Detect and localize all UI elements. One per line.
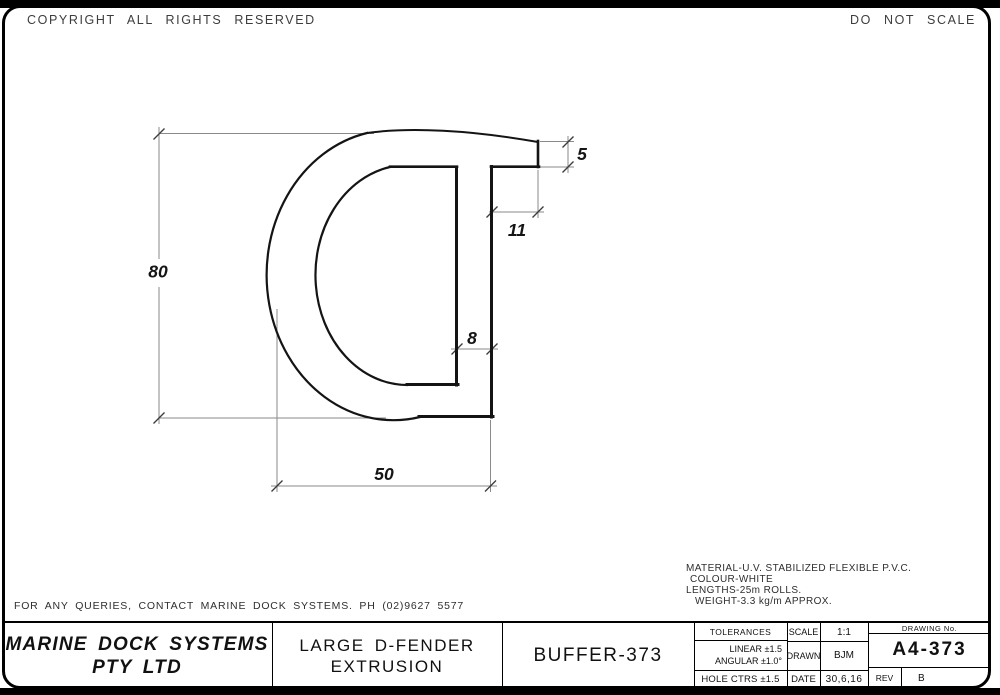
inner-arc — [315, 167, 407, 385]
date-value: 30,6,16 — [820, 670, 868, 689]
outer-top-line — [367, 130, 538, 142]
note-colour: COLOUR-WHITE — [686, 574, 911, 585]
scale-value: 1:1 — [820, 623, 868, 641]
note-material: MATERIAL-U.V. STABILIZED FLEXIBLE P.V.C. — [686, 563, 911, 574]
company-name: MARINE DOCK SYSTEMS PTY LTD — [2, 623, 272, 689]
tolerance-angular: ANGULAR ±1.0° — [715, 655, 782, 667]
dimension-8-label: 8 — [467, 328, 477, 348]
drawing-title: LARGE D-FENDER EXTRUSION — [272, 623, 502, 689]
dimension-tick-marks — [154, 129, 574, 492]
drawing-sheet: COPYRIGHT ALL RIGHTS RESERVED DO NOT SCA… — [0, 0, 1000, 695]
revision-value: B — [901, 667, 991, 689]
tolerance-linear: LINEAR ±1.5 — [730, 643, 782, 655]
title-block: MARINE DOCK SYSTEMS PTY LTD LARGE D-FEND… — [2, 621, 991, 689]
outer-arc — [267, 133, 420, 420]
tolerances-linear-angular: LINEAR ±1.5 ANGULAR ±1.0° — [694, 640, 787, 670]
drawing-title-line2: EXTRUSION — [331, 656, 444, 677]
material-notes-block: MATERIAL-U.V. STABILIZED FLEXIBLE P.V.C.… — [686, 563, 911, 607]
product-code: BUFFER-373 — [502, 623, 694, 689]
drawn-label: DRAWN — [787, 641, 820, 670]
tolerances-header: TOLERANCES — [694, 623, 787, 640]
extrusion-profile-outline — [267, 130, 539, 420]
dimension-80-label: 80 — [148, 262, 168, 282]
company-name-line1: MARINE DOCK SYSTEMS — [5, 633, 268, 656]
dimension-50-label: 50 — [374, 464, 394, 484]
dimension-lines — [159, 127, 574, 492]
drawing-number-label: DRAWING No. — [868, 623, 991, 633]
drawing-number: A4-373 — [868, 633, 991, 667]
revision-label: REV — [868, 667, 901, 689]
dimension-labels: 80 50 11 8 5 — [148, 144, 587, 484]
company-name-line2: PTY LTD — [92, 656, 182, 679]
contact-note: FOR ANY QUERIES, CONTACT MARINE DOCK SYS… — [14, 600, 464, 612]
dimension-5-label: 5 — [577, 144, 587, 164]
drawn-value: BJM — [820, 641, 868, 670]
dimension-11-label: 11 — [508, 220, 526, 240]
scale-label: SCALE — [787, 623, 820, 641]
drawing-title-line1: LARGE D-FENDER — [299, 635, 474, 656]
note-lengths: LENGTHS-25m ROLLS. — [686, 585, 911, 596]
tolerance-hole-ctrs: HOLE CTRS ±1.5 — [694, 670, 787, 689]
note-weight: WEIGHT-3.3 kg/m APPROX. — [686, 596, 911, 607]
date-label: DATE — [787, 670, 820, 689]
